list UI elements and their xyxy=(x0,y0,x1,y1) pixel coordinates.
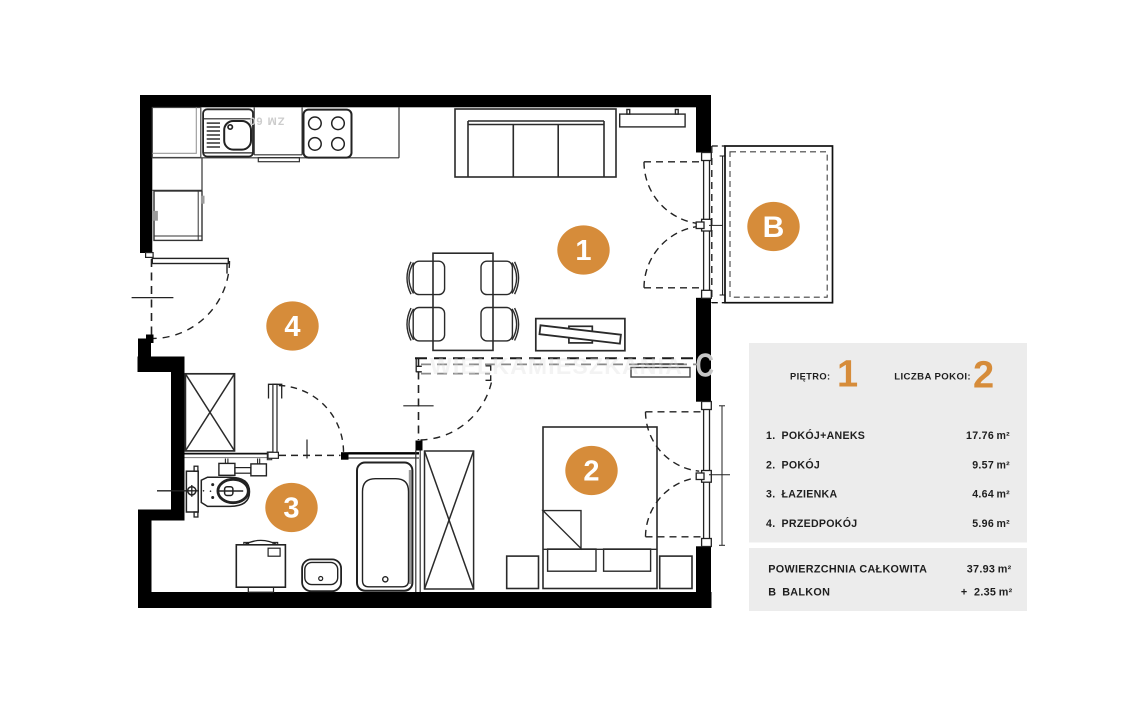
svg-text:17.76 m²: 17.76 m² xyxy=(966,430,1010,442)
svg-text:1: 1 xyxy=(837,354,858,396)
svg-text:4.64 m²: 4.64 m² xyxy=(972,489,1010,501)
svg-text:2: 2 xyxy=(973,354,994,396)
svg-text:BALKON: BALKON xyxy=(782,587,830,599)
svg-text:4.: 4. xyxy=(766,518,775,530)
svg-text:+ 2.35 m²: + 2.35 m² xyxy=(961,587,1013,599)
svg-text:B: B xyxy=(763,211,785,244)
svg-text:3: 3 xyxy=(283,493,299,525)
svg-text:WIELKAMIESZKANIA: WIELKAMIESZKANIA xyxy=(430,353,683,379)
svg-text:3.: 3. xyxy=(766,489,775,501)
svg-text:LICZBA POKOI:: LICZBA POKOI: xyxy=(894,372,971,383)
svg-text:1.: 1. xyxy=(766,430,775,442)
svg-text:ZM 60: ZM 60 xyxy=(248,115,284,127)
svg-text:5.96 m²: 5.96 m² xyxy=(972,518,1010,530)
svg-text:4: 4 xyxy=(284,311,300,343)
svg-text:9.57 m²: 9.57 m² xyxy=(972,459,1010,471)
svg-text:POKÓJ: POKÓJ xyxy=(782,458,821,471)
svg-text:PRZEDPOKÓJ: PRZEDPOKÓJ xyxy=(782,517,858,530)
svg-text:POWIERZCHNIA CAŁKOWITA: POWIERZCHNIA CAŁKOWITA xyxy=(768,564,927,576)
svg-text:2: 2 xyxy=(583,456,599,488)
svg-text:POKÓJ+ANEKS: POKÓJ+ANEKS xyxy=(782,429,866,442)
svg-text:2.: 2. xyxy=(766,459,775,471)
svg-text:37.93 m²: 37.93 m² xyxy=(967,564,1012,576)
svg-text:1: 1 xyxy=(575,235,591,267)
svg-text:B: B xyxy=(768,587,776,599)
svg-text:ŁAZIENKA: ŁAZIENKA xyxy=(782,489,838,501)
svg-text:PIĘTRO:: PIĘTRO: xyxy=(790,372,831,382)
svg-text:C: C xyxy=(696,348,715,385)
